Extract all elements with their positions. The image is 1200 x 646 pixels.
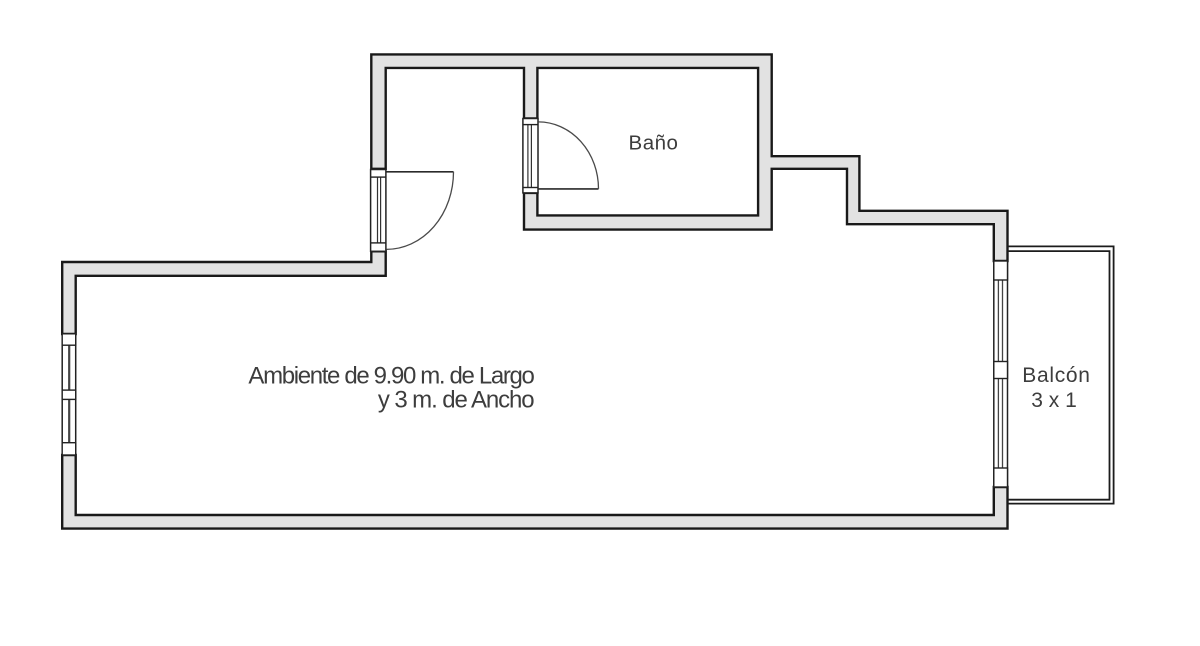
svg-text:y 3 m. de Ancho: y 3 m. de Ancho [378, 386, 534, 413]
svg-text:Balcón: Balcón [1022, 364, 1090, 387]
svg-text:3 x 1: 3 x 1 [1031, 389, 1077, 412]
svg-text:Baño: Baño [629, 132, 679, 155]
